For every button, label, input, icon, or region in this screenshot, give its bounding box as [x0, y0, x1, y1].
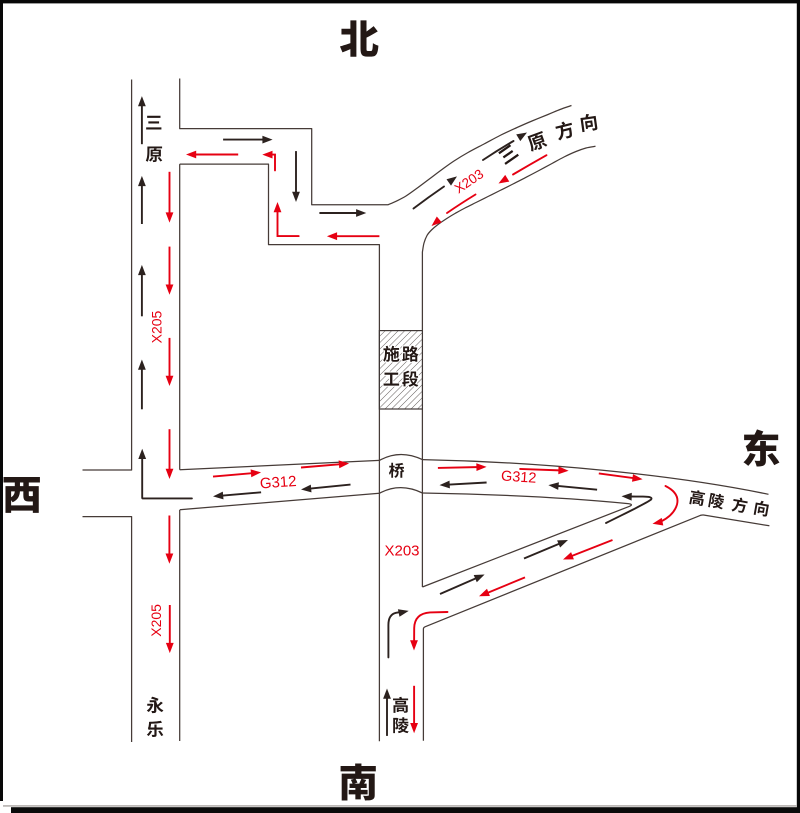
- svg-text:X205: X205: [148, 604, 164, 637]
- svg-text:G312: G312: [259, 473, 297, 493]
- svg-text:X205: X205: [149, 310, 165, 343]
- svg-text:X203: X203: [384, 543, 419, 560]
- svg-text:G312: G312: [500, 468, 537, 486]
